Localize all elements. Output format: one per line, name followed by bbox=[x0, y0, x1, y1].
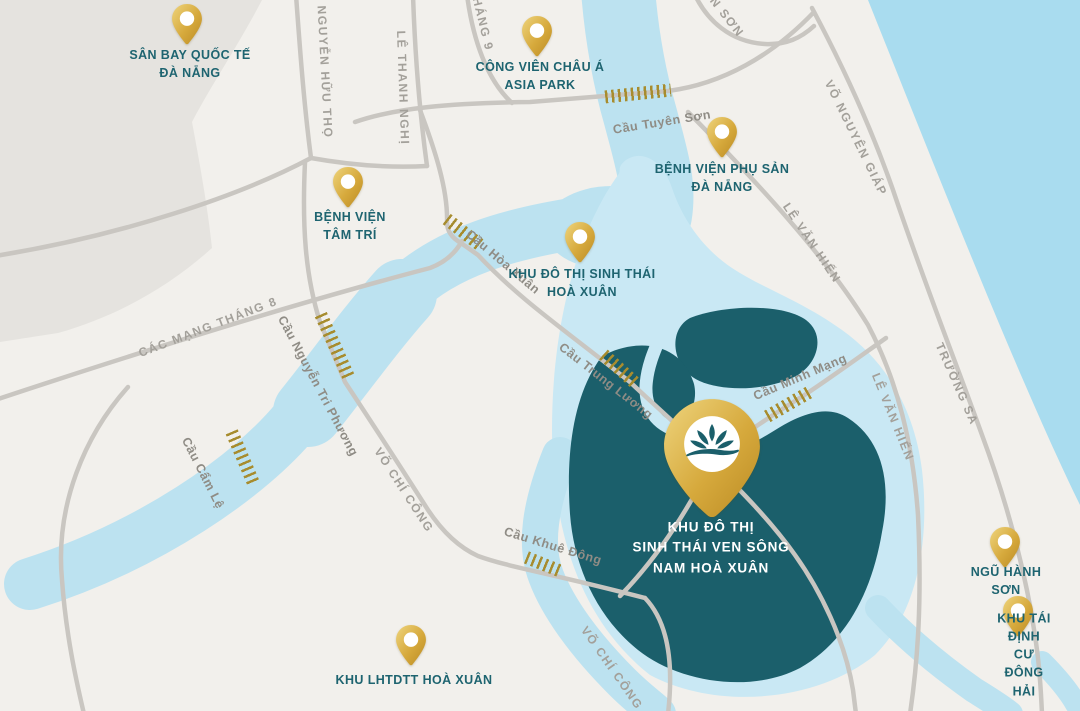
pin-asia-park[interactable] bbox=[521, 15, 553, 58]
pin-hoa-xuan-eco[interactable] bbox=[564, 221, 596, 264]
pin-tam-tri-hospital[interactable] bbox=[332, 166, 364, 209]
location-map: Cầu Tuyên Sơn Cầu Hòa Xuân Cầu Nguyễn Tr… bbox=[0, 0, 1080, 711]
pin-phu-san-hospital[interactable] bbox=[706, 116, 738, 159]
pin-ngu-hanh-son[interactable] bbox=[989, 526, 1021, 569]
map-canvas bbox=[0, 0, 1080, 711]
pin-airport[interactable] bbox=[171, 3, 203, 46]
pin-project-main[interactable] bbox=[659, 397, 765, 519]
pin-lhtdtt[interactable] bbox=[395, 624, 427, 667]
pin-dong-hai[interactable] bbox=[1002, 595, 1034, 638]
